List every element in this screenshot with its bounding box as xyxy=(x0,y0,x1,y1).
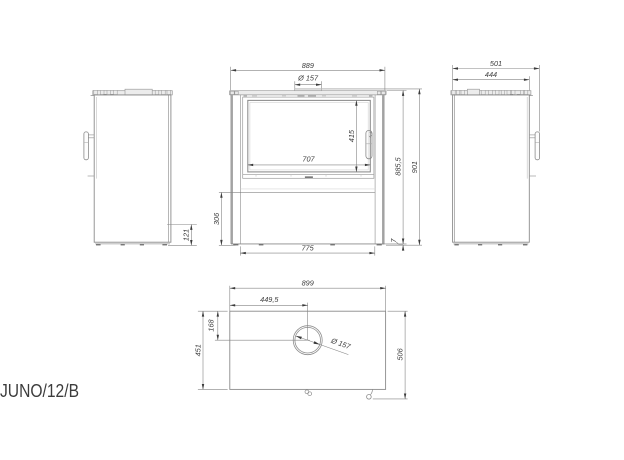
svg-text:JUNO/12/B: JUNO/12/B xyxy=(0,380,79,401)
svg-text:889: 889 xyxy=(302,61,314,70)
svg-text:Ø 157: Ø 157 xyxy=(297,73,319,82)
svg-text:306: 306 xyxy=(212,212,221,225)
svg-text:451: 451 xyxy=(194,344,203,356)
svg-text:121: 121 xyxy=(182,229,191,241)
svg-text:899: 899 xyxy=(302,279,314,288)
svg-text:501: 501 xyxy=(490,59,502,68)
svg-text:901: 901 xyxy=(410,161,419,173)
svg-text:168: 168 xyxy=(207,318,216,331)
svg-text:415: 415 xyxy=(347,129,356,142)
svg-text:707: 707 xyxy=(302,155,315,164)
svg-text:444: 444 xyxy=(485,70,497,79)
svg-text:449,5: 449,5 xyxy=(260,295,279,304)
svg-text:506: 506 xyxy=(395,347,404,360)
svg-text:885,5: 885,5 xyxy=(393,157,402,176)
svg-text:775: 775 xyxy=(302,244,315,253)
